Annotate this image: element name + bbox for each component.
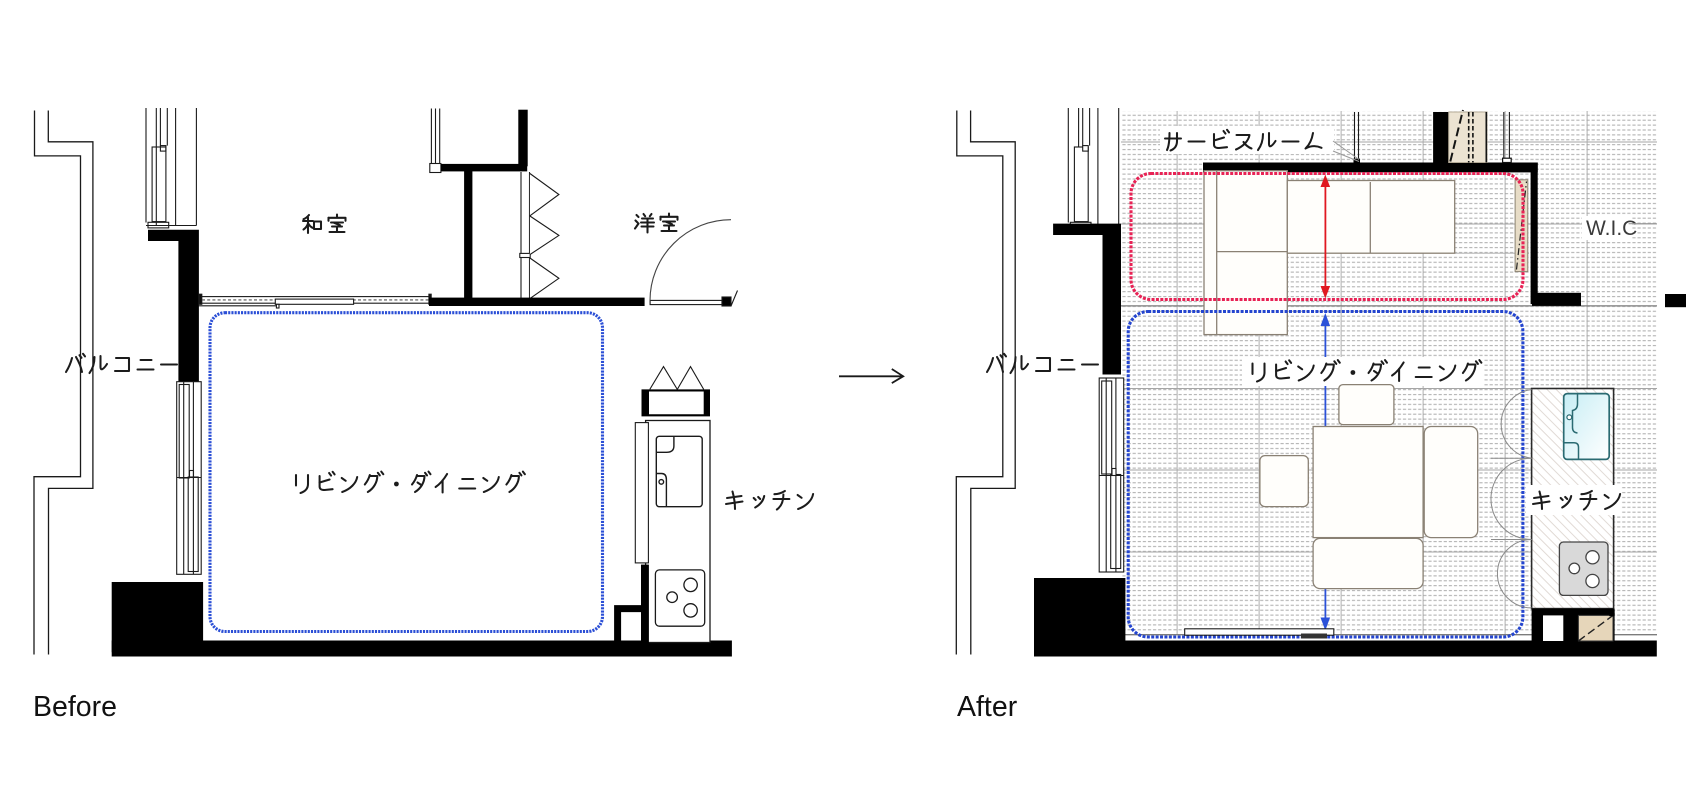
- svg-text:W.I.C: W.I.C: [1586, 217, 1637, 240]
- svg-text:After: After: [957, 691, 1018, 723]
- svg-text:Before: Before: [33, 691, 117, 723]
